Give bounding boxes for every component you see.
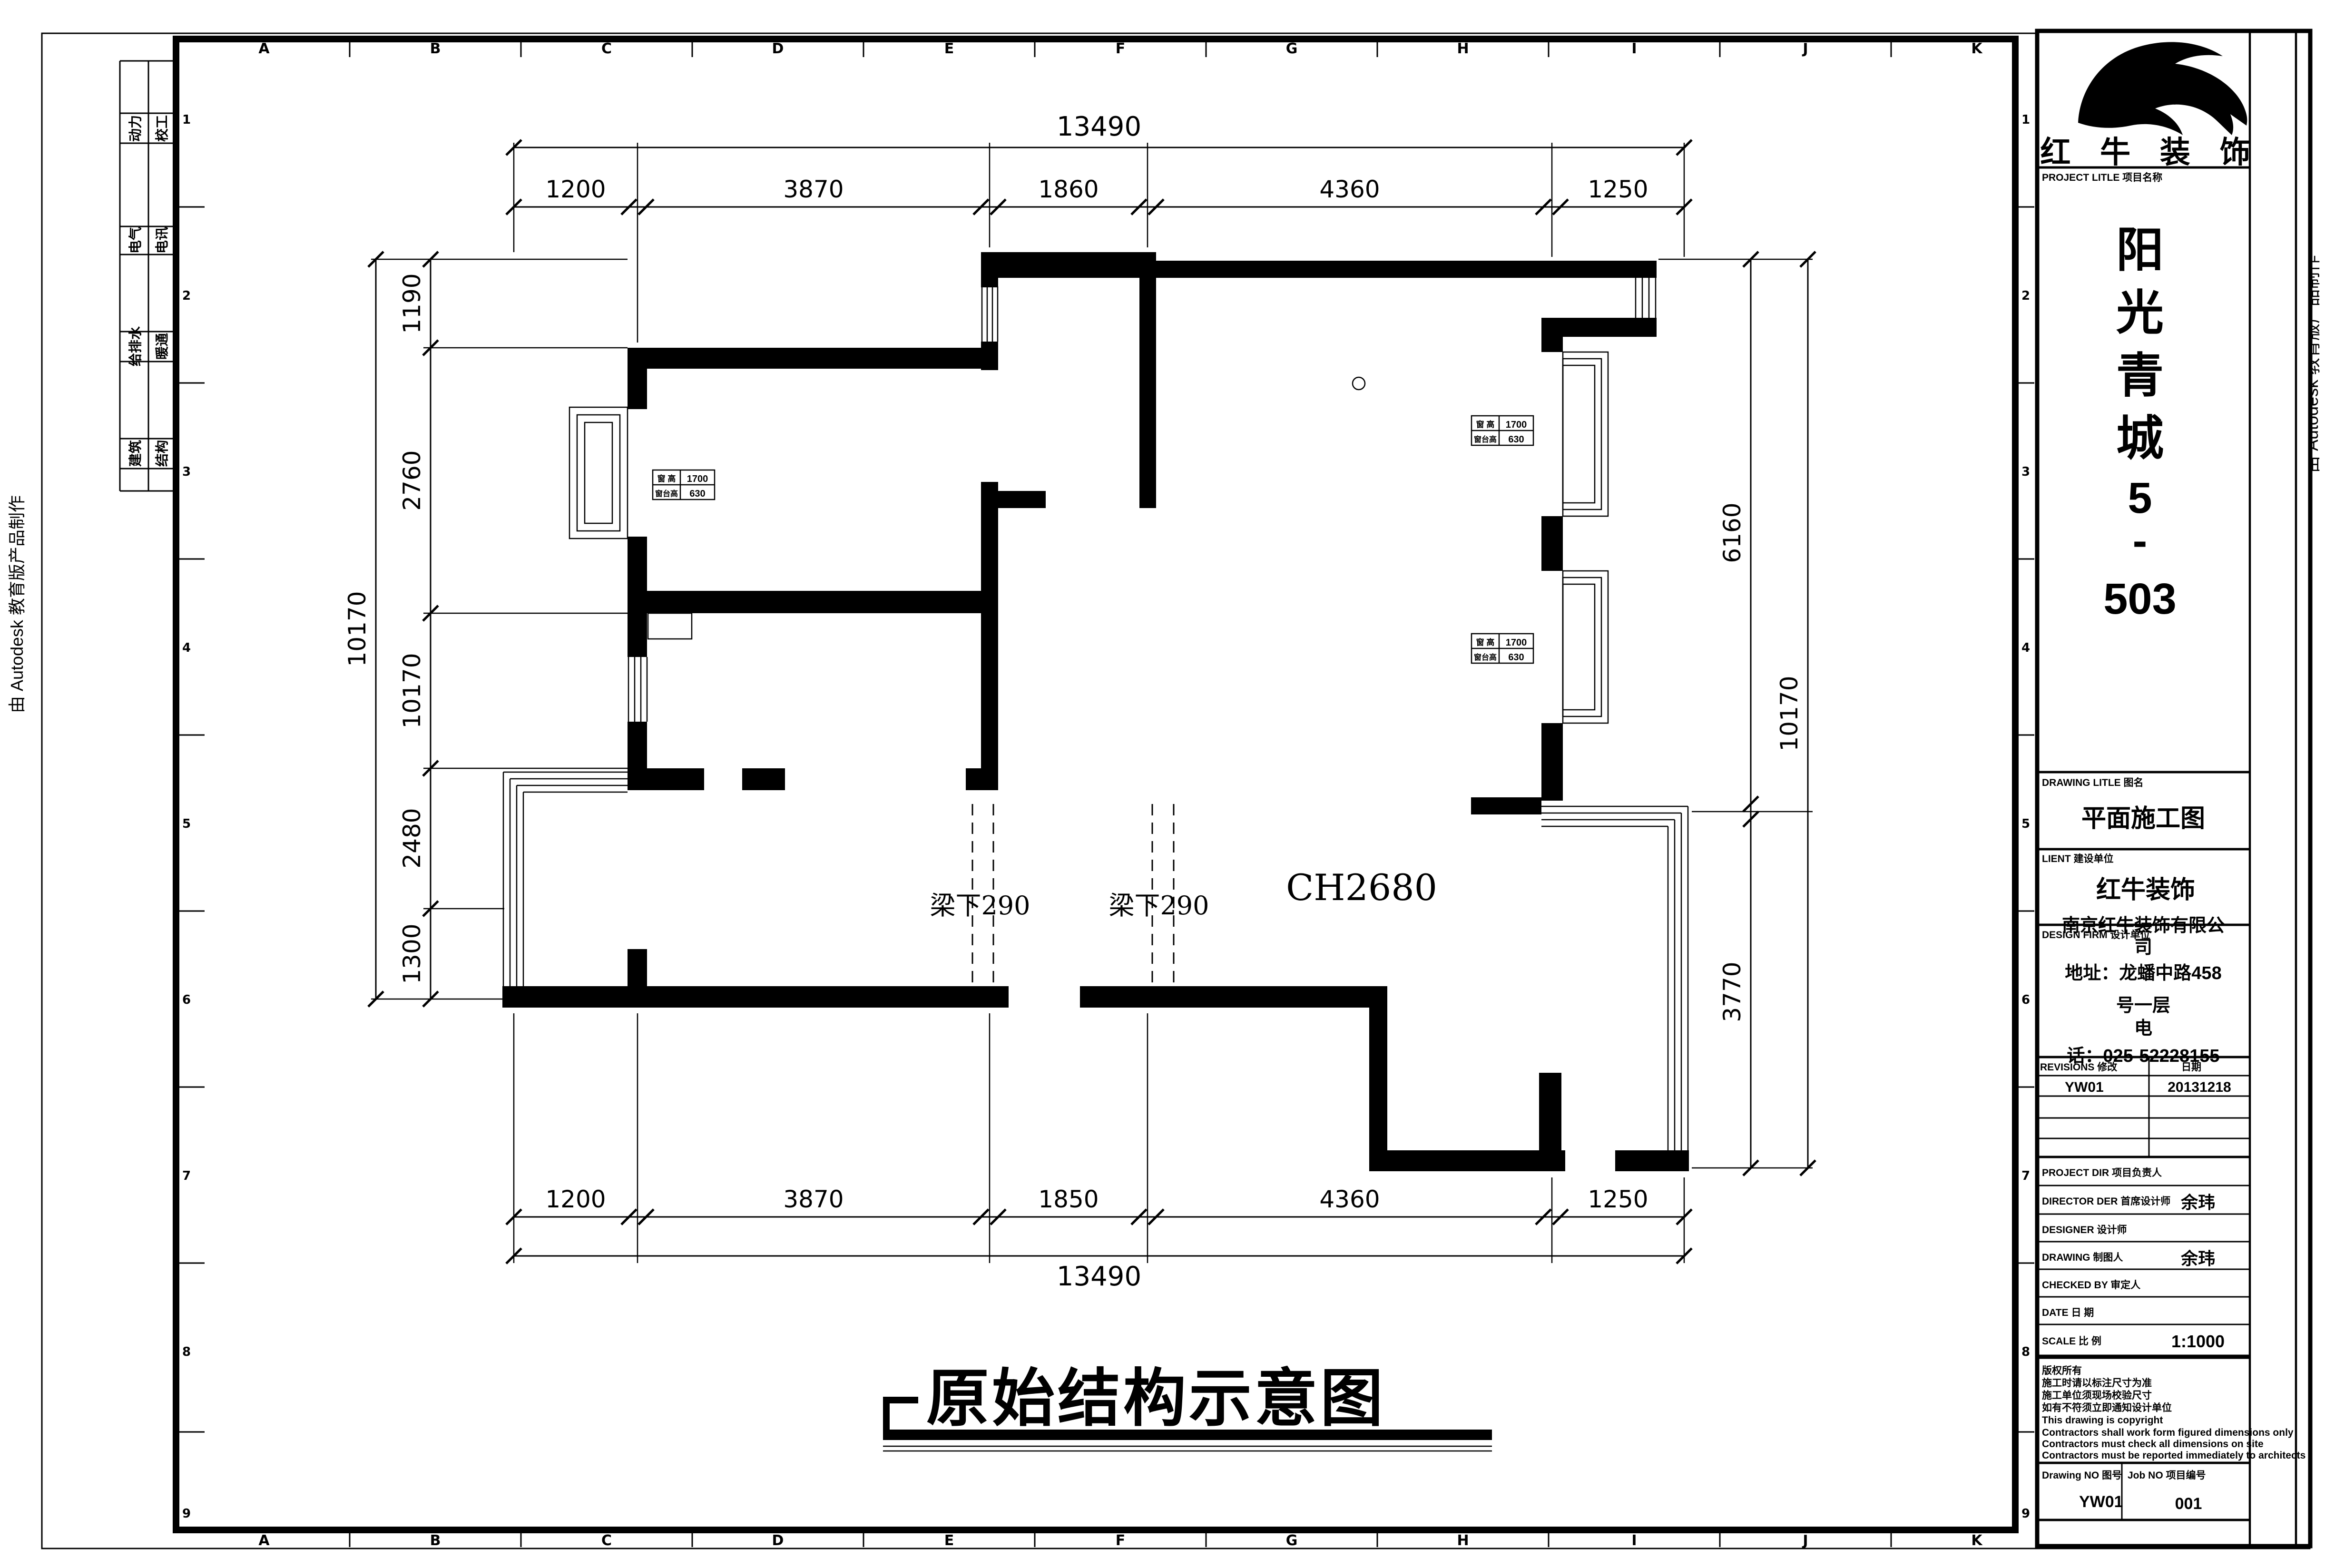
sheet-frame [42,33,2310,1548]
discipline-cell: 动力 [128,115,143,142]
grid-number: 6 [182,993,191,1007]
grid-letter: H [1457,40,1469,57]
discipline-cell: 建筑 [128,440,143,467]
grid-letter: I [1631,40,1637,57]
balcony-window-icon [1541,806,1688,1161]
beam-label: 梁下290 [1109,891,1209,921]
grid-number: 9 [2021,1507,2030,1521]
revisions-date-label: 日期 [2181,1062,2201,1073]
revision-no: YW01 [2065,1079,2104,1095]
balcony-window-icon [503,772,628,986]
dim-seg: 2480 [398,808,426,868]
grid-number: 3 [182,465,191,479]
client-value: 红牛装饰 [2096,876,2195,904]
director-value: 余玮 [2180,1193,2215,1212]
drawing-no-label: Drawing NO 图号 [2042,1470,2122,1481]
watermark-left: 由 Autodesk 教育版产品制作 [7,495,27,713]
drawing-by-value: 余玮 [2180,1249,2215,1268]
discipline-cell: 校工 [154,115,169,142]
grid-letter: F [1116,1532,1126,1549]
window-tag-1: 窗 高 1700 窗台高 630 [653,470,715,500]
note-line: This drawing is copyright [2042,1415,2163,1426]
grid-number: 8 [2021,1345,2030,1359]
window-tag-2: 窗 高 1700 窗台高 630 [1472,416,1533,445]
job-no-value: 001 [2175,1495,2202,1513]
bay-window-icon [569,407,628,539]
beam-label: 梁下290 [930,891,1030,921]
project-name-char: 阳 [2116,224,2164,277]
discipline-cell: 电讯 [155,227,169,254]
grid-letter: C [601,40,612,57]
tag-value: 1700 [1506,637,1527,648]
dim-seg: 1200 [545,1186,606,1213]
project-name-char: 青 [2116,349,2164,402]
grid-letters-top: A B C D E F G H I J K [258,40,1983,57]
grid-number: 1 [182,113,191,127]
checked-by-label: CHECKED BY 审定人 [2042,1279,2140,1291]
tag-label: 窗台高 [1474,435,1497,444]
plan-title: 原始结构示意图 [926,1363,1386,1433]
dim-seg: 1860 [1038,176,1099,203]
tag-value: 630 [1508,434,1524,445]
grid-number: 8 [182,1345,191,1359]
job-no-label: Job NO 项目编号 [2128,1470,2206,1481]
dim-seg: 6160 [1718,502,1746,563]
duct-icon [648,613,692,639]
grid-letter: I [1631,1532,1637,1549]
grid-letter: B [430,40,441,57]
director-label: DIRECTOR DER 首席设计师 [2042,1196,2170,1207]
grid-number: 9 [182,1507,191,1521]
grid-letter: J [1802,40,1808,57]
designer-label: DESIGNER 设计师 [2042,1225,2127,1235]
window-icon [982,286,998,342]
project-name-char: 城 [2116,412,2164,465]
grid-numbers-left: 1 2 3 4 5 6 7 8 9 [178,113,205,1521]
grid-letter: H [1457,1532,1469,1549]
bay-window-icon [1563,571,1608,723]
discipline-cell: 结构 [155,440,169,467]
revisions-label: REVISIONS 修改 [2040,1061,2118,1073]
dim-seg: 1300 [398,923,426,984]
title-underline [883,1430,1492,1440]
floor-plan-walls [502,252,1689,1171]
dim-seg: 2760 [398,450,426,510]
note-line: 施工时请以标注尺寸为准 [2042,1377,2152,1389]
grid-number: 4 [2021,641,2030,655]
dim-total-top: 13490 [1057,111,1141,142]
note-line: Contractors must check all dimensions on… [2042,1439,2264,1450]
drawing-title-label: DRAWING LITLE 图名 [2042,777,2144,788]
beam-lines: 梁下290 梁下290 CH2680 [930,804,1437,985]
drawing-title: 原始结构示意图 [883,1363,1492,1451]
note-line: 如有不符须立即通知设计单位 [2042,1402,2172,1413]
grid-numbers-right: 1 2 3 4 5 6 7 8 9 [2018,113,2034,1521]
grid-letter: K [1971,40,1983,57]
grid-number: 2 [2021,289,2030,303]
logo-text: 红 牛 装 饰 [2040,135,2260,169]
grid-letters-bottom: A B C D E F G H I J K [258,1532,1983,1549]
project-name-char: 光 [2116,286,2164,340]
dim-chain-left: 10170 1190 2760 10170 2480 1300 [343,252,628,1007]
drawing-no-value: YW01 [2079,1493,2123,1511]
grid-number: 2 [182,289,191,303]
project-dir-label: PROJECT DIR 项目负责人 [2042,1167,2162,1178]
discipline-table: 动力 校工 电气 电讯 给排水 暖通 建筑 结构 [120,61,175,491]
grid-number: 7 [2021,1169,2030,1183]
grid-letter: A [258,40,270,57]
tag-value: 1700 [1506,420,1527,430]
tag-label: 窗台高 [1474,653,1497,662]
discipline-cell: 暖通 [155,333,169,360]
dim-seg: 1850 [1038,1186,1099,1213]
grid-letter: G [1286,1532,1298,1549]
tag-label: 窗 高 [1476,637,1495,647]
note-line: 版权所有 [2042,1365,2082,1376]
grid-number: 5 [2021,817,2030,831]
tag-label: 窗 高 [1476,420,1495,429]
scale-value: 1:1000 [2171,1332,2225,1351]
revision-date: 20131218 [2168,1079,2231,1095]
scale-label: SCALE 比 例 [2042,1335,2101,1347]
grid-number: 5 [182,817,191,831]
dim-chain-top: 13490 1200 3870 1860 4360 1250 [506,111,1692,343]
grid-letter: D [772,1532,784,1549]
project-label: PROJECT LITLE 项目名称 [2042,172,2162,183]
date-label: DATE 日 期 [2042,1307,2094,1318]
note-line: 施工单位须现场校验尺寸 [2042,1390,2152,1401]
tag-label: 窗 高 [657,474,676,483]
drawing-sheet: 由 Autodesk 教育版产品制作 由 Autodesk 教育版产品制作 A … [0,0,2325,1568]
client-label: LIENT 建设单位 [2042,853,2114,864]
grid-letter: E [944,1532,954,1549]
dim-seg: 3870 [783,176,844,203]
project-name-char: - [2133,517,2148,565]
dim-total-right: 10170 [1776,676,1803,751]
drawing-title-value: 平面施工图 [2081,805,2205,833]
discipline-cell: 电气 [128,227,143,254]
grid-number: 4 [182,641,191,655]
grid-letter: A [258,1532,270,1549]
dim-chain-right: 6160 3770 10170 [1658,252,1815,1176]
window-icon [1636,278,1656,318]
grid-letter: B [430,1532,441,1549]
design-firm-label: DESIGN FIRM 设计单位 [2042,929,2150,941]
dim-total-left: 10170 [343,591,371,666]
grid-letter: K [1971,1532,1983,1549]
design-firm-line: 号一层 [2116,996,2170,1016]
grid-letter: C [601,1532,612,1549]
dim-seg: 3870 [783,1186,844,1213]
dim-seg: 1250 [1588,1186,1648,1213]
design-firm-line: 地址：龙蟠中路458 [2065,963,2221,983]
ceiling-height-label: CH2680 [1286,866,1437,909]
dim-seg: 3770 [1718,961,1746,1022]
grid-letter: F [1116,40,1126,57]
outer-frame [42,33,2310,1548]
dim-total-bottom: 13490 [1057,1261,1141,1292]
grid-letter: G [1286,40,1298,57]
dim-seg: 4360 [1319,176,1380,203]
bay-window-icon [1563,352,1608,516]
tag-value: 1700 [687,474,708,484]
dim-seg: 1200 [545,176,606,203]
discipline-cell: 给排水 [128,326,143,366]
note-line: Contractors shall work form figured dime… [2042,1427,2294,1438]
design-firm-line: 司 [2134,938,2152,958]
design-firm-line: 电 [2134,1019,2152,1039]
grid-number: 3 [2021,465,2030,479]
dim-seg: 4360 [1319,1186,1380,1213]
window-icon [628,657,647,722]
grid-letter: E [944,40,954,57]
grid-number: 1 [2021,113,2030,127]
circle-symbol-icon [1353,377,1365,390]
grid-letter: J [1802,1532,1808,1549]
tag-label: 窗台高 [655,489,678,498]
dim-seg: 1190 [398,273,426,333]
window-tag-3: 窗 高 1700 窗台高 630 [1472,634,1533,663]
title-block: 红 牛 装 饰 PROJECT LITLE 项目名称 阳 光 青 城 5 - 5… [2037,31,2310,1546]
title-block-border [2037,31,2310,1546]
floor-plan-windows [503,278,1688,1161]
project-name-char: 503 [2103,575,2177,623]
grid-number: 6 [2021,993,2030,1007]
tag-value: 630 [1508,652,1524,663]
dim-seg: 10170 [398,653,426,728]
note-line: Contractors must be reported immediately… [2042,1450,2305,1461]
drawing-by-label: DRAWING 制图人 [2042,1252,2123,1263]
project-name-char: 5 [2128,474,2152,522]
dim-seg: 1250 [1588,176,1648,203]
grid-number: 7 [182,1169,191,1183]
grid-letter: D [772,40,784,57]
tag-value: 630 [689,489,705,499]
